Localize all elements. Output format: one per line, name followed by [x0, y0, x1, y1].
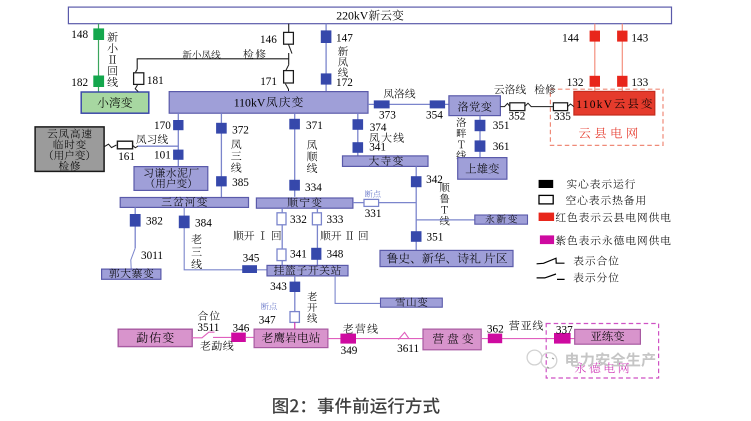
svg-text:332: 332 — [290, 214, 307, 226]
svg-text:333: 333 — [327, 214, 344, 226]
svg-text:334: 334 — [305, 182, 322, 194]
svg-text:345: 345 — [243, 252, 260, 264]
svg-text:132: 132 — [567, 77, 584, 89]
svg-text:147: 147 — [336, 32, 353, 44]
svg-text:349: 349 — [341, 345, 358, 357]
svg-text:384: 384 — [195, 217, 212, 229]
svg-text:3611: 3611 — [397, 343, 419, 355]
svg-text:335: 335 — [554, 111, 571, 123]
svg-text:354: 354 — [426, 110, 443, 122]
svg-text:343: 343 — [270, 281, 287, 293]
svg-text:361: 361 — [493, 141, 510, 153]
svg-text:110kV: 110kV — [576, 99, 613, 111]
svg-text:371: 371 — [306, 120, 323, 132]
svg-text:385: 385 — [232, 177, 249, 189]
svg-text:341: 341 — [369, 141, 386, 153]
svg-text:144: 144 — [562, 33, 579, 45]
svg-text:172: 172 — [336, 77, 353, 89]
svg-text:161: 161 — [118, 151, 135, 163]
svg-text:146: 146 — [260, 34, 277, 46]
svg-text:347: 347 — [259, 315, 276, 327]
svg-text:331: 331 — [365, 208, 382, 220]
svg-text:351: 351 — [427, 232, 444, 244]
svg-text:143: 143 — [631, 33, 648, 45]
svg-text:337: 337 — [556, 324, 573, 336]
svg-text:348: 348 — [327, 248, 344, 260]
svg-text:133: 133 — [631, 77, 648, 89]
svg-text:374: 374 — [370, 122, 387, 134]
svg-text:171: 171 — [260, 76, 277, 88]
svg-text:352: 352 — [509, 111, 526, 123]
svg-text:170: 170 — [154, 120, 171, 132]
svg-text:181: 181 — [147, 75, 164, 87]
svg-text:362: 362 — [487, 324, 504, 336]
svg-text:3511: 3511 — [197, 322, 219, 334]
svg-text:372: 372 — [232, 124, 249, 136]
svg-text:220kV: 220kV — [336, 9, 369, 23]
svg-text:351: 351 — [493, 120, 510, 132]
svg-text:342: 342 — [426, 174, 443, 186]
svg-text:101: 101 — [154, 150, 171, 162]
svg-text:148: 148 — [71, 29, 88, 41]
svg-text:346: 346 — [233, 323, 250, 335]
svg-text:182: 182 — [71, 77, 88, 89]
svg-text:341: 341 — [290, 248, 307, 260]
svg-text:110kV: 110kV — [234, 95, 266, 109]
svg-text:382: 382 — [146, 216, 163, 228]
svg-text:3011: 3011 — [141, 250, 163, 262]
svg-text:373: 373 — [379, 110, 396, 122]
